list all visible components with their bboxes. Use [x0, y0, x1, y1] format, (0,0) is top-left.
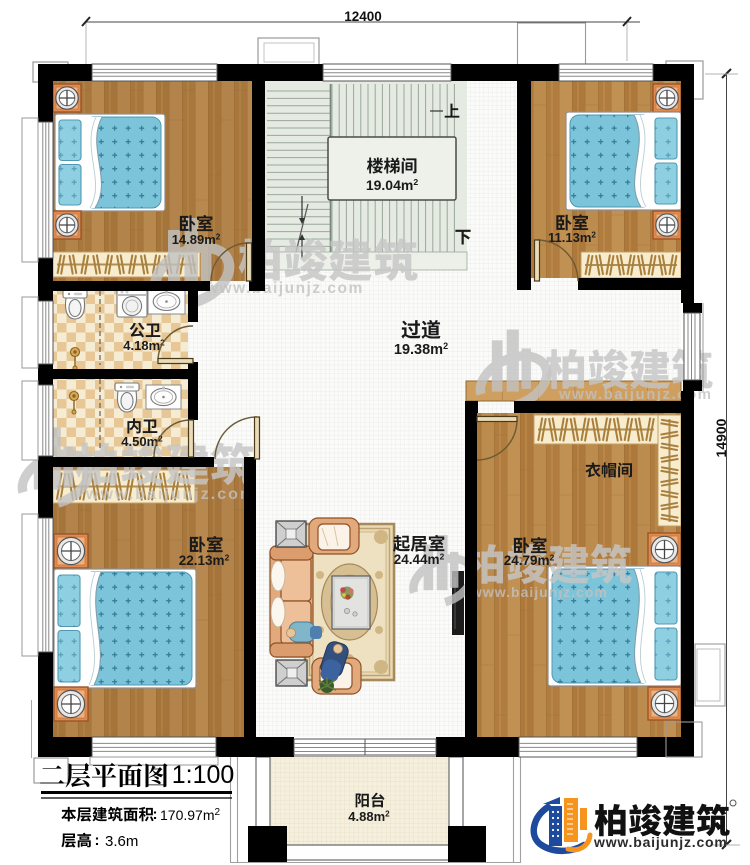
svg-text::: :: [153, 806, 158, 823]
svg-text:www.baijunjz.com: www.baijunjz.com: [85, 486, 256, 503]
svg-text:24.79m2: 24.79m2: [504, 552, 555, 568]
svg-text:19.38m2: 19.38m2: [394, 341, 448, 358]
svg-text:www.baijunjz.com: www.baijunjz.com: [593, 834, 728, 850]
svg-text:12400: 12400: [344, 9, 382, 24]
svg-text:www.baijunjz.com: www.baijunjz.com: [470, 584, 608, 600]
svg-text:19.04m2: 19.04m2: [366, 177, 418, 193]
svg-text::: :: [95, 832, 100, 849]
svg-text:www.baijunjz.com: www.baijunjz.com: [205, 280, 364, 297]
svg-text:3.6m: 3.6m: [105, 833, 138, 850]
svg-text:22.13m2: 22.13m2: [179, 552, 230, 568]
svg-text:4.88m2: 4.88m2: [348, 809, 390, 824]
svg-text:11.13m2: 11.13m2: [548, 230, 596, 245]
svg-text:14900: 14900: [713, 418, 729, 457]
svg-text:170.97m2: 170.97m2: [160, 807, 220, 823]
svg-text:24.44m2: 24.44m2: [394, 551, 445, 567]
svg-text:1:100: 1:100: [172, 761, 235, 789]
svg-text:14.89m2: 14.89m2: [172, 232, 221, 247]
